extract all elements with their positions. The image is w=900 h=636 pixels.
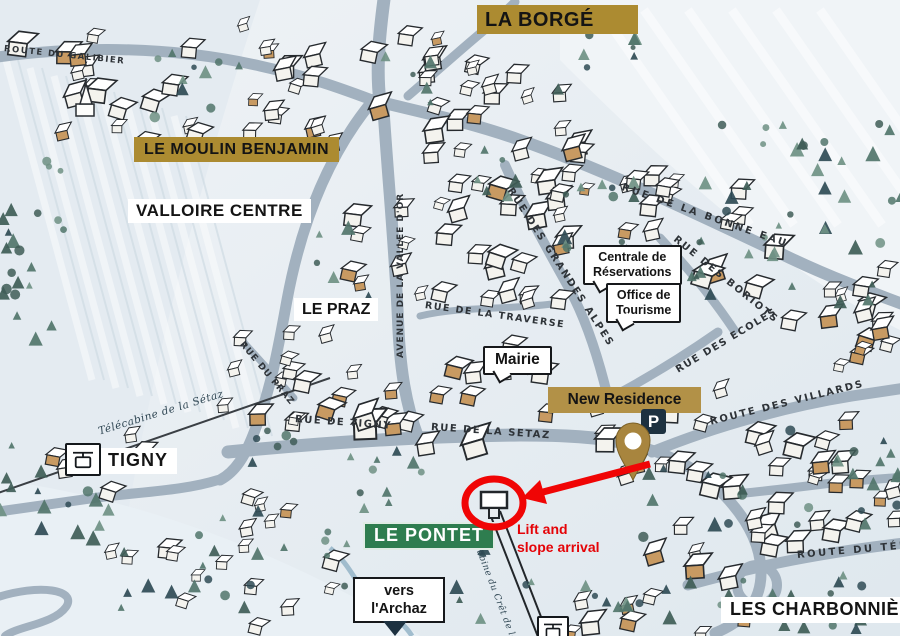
location-pin-icon [612,420,654,482]
place-label-le-moulin-benjamin: LE MOULIN BENJAMIN [134,137,339,162]
vers-archaz-line2: l'Archaz [359,600,439,618]
place-label-la-borge: LA BORGÉ [477,5,638,34]
place-label-vers-larchaz: vers l'Archaz [353,577,445,623]
place-label-valloire-centre: VALLOIRE CENTRE [128,199,311,223]
vers-archaz-line1: vers [359,582,439,600]
valloire-resort-map: ROUTE DU GALIBIER RUE DE LA BONNE EAU RU… [0,0,900,636]
place-label-tigny: TIGNY [99,448,177,474]
direction-pointer-icon [383,621,407,636]
poi-label-centrale-de-reservations: Centrale de Réservations [583,245,682,285]
place-label-les-charbonnieres: LES CHARBONNIÈRES [721,597,900,623]
annotation-text-lift-arrival: Lift and [517,521,568,538]
street-label-avenue-de-la-vallee-dor: AVENUE DE LA VALLEE D'OR [396,193,406,358]
gondola-icon [537,616,569,636]
centrale-line1: Centrale de [593,250,672,265]
poi-label-mairie: Mairie [483,346,552,375]
poi-label-office-de-tourisme: Office de Tourisme [606,283,681,323]
gondola-icon [65,443,101,476]
place-label-le-praz: LE PRAZ [294,298,378,321]
place-label-le-pontet: LE PONTET [363,522,495,550]
annotation-text-slope-arrival: slope arrival [517,539,600,556]
office-line1: Office de [616,288,671,303]
new-residence-banner: New Residence [548,387,701,413]
